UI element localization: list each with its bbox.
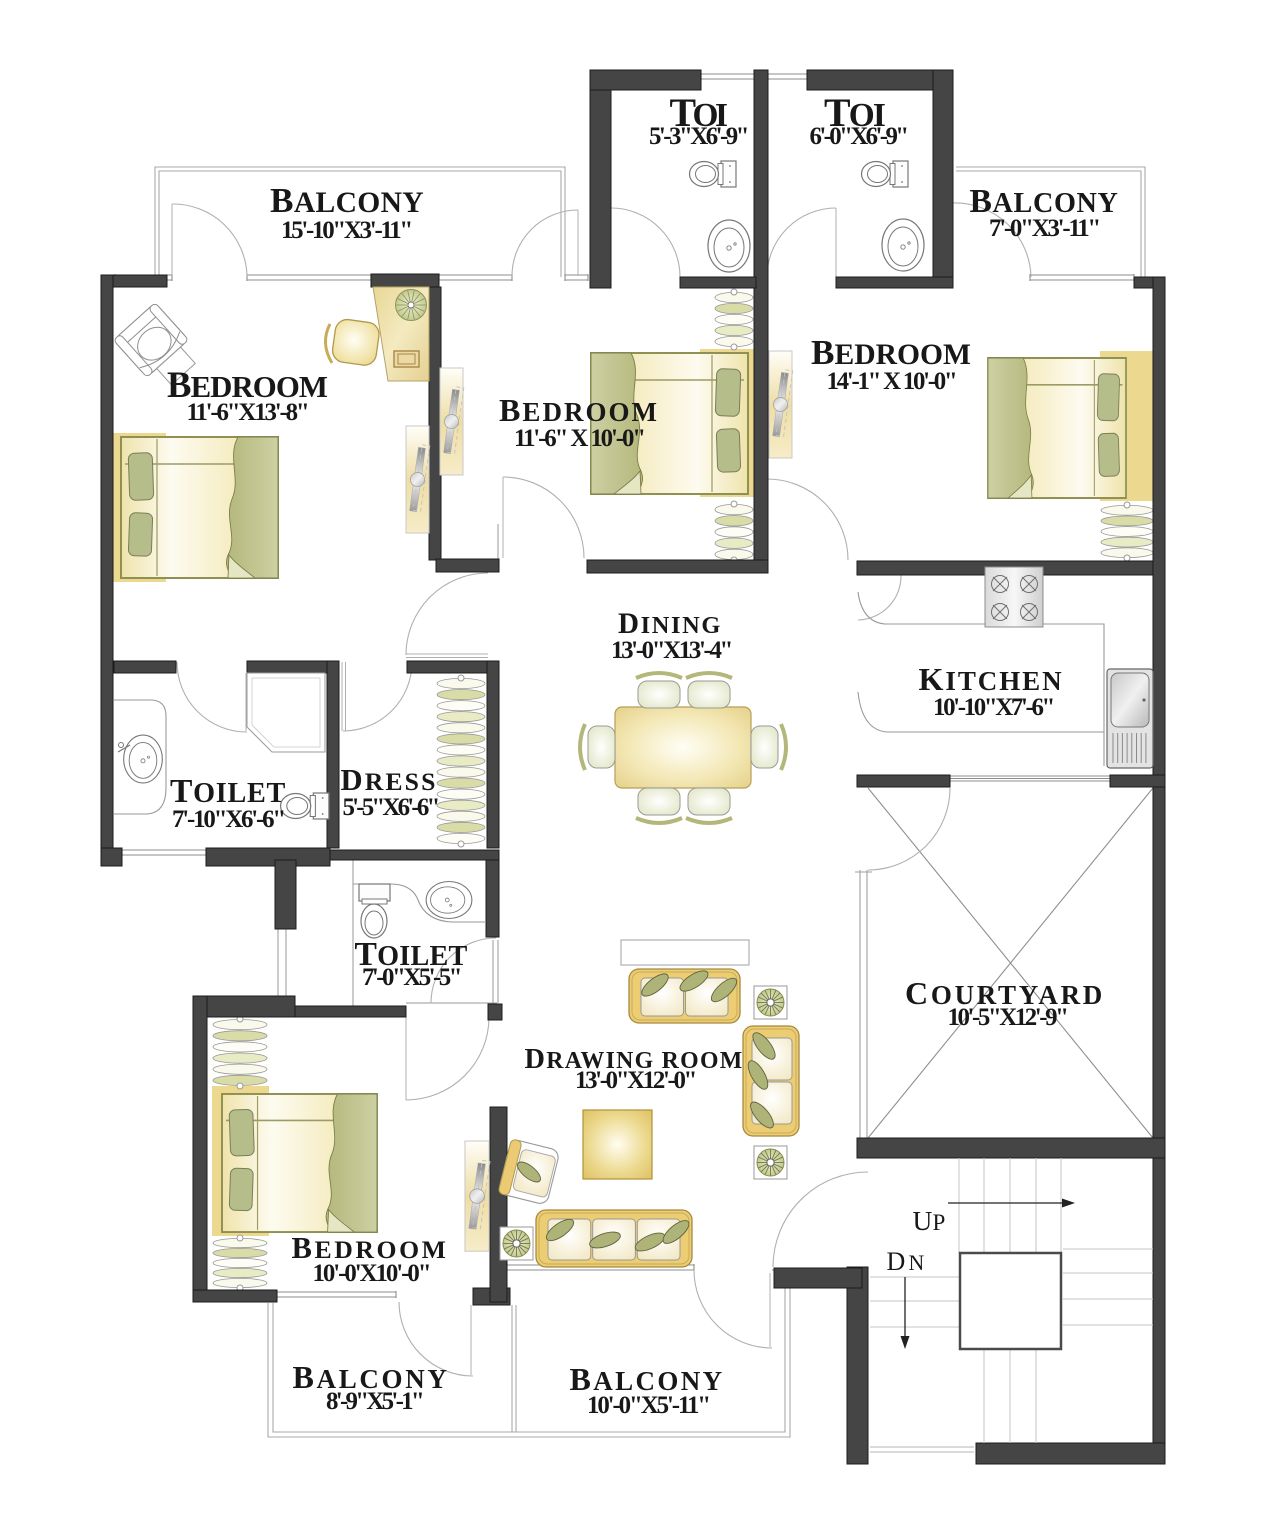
- svg-text:15'-10"X3'-11": 15'-10"X3'-11": [281, 217, 411, 244]
- svg-text:10'-5"X12'-9": 10'-5"X12'-9": [948, 1004, 1068, 1031]
- svg-text:7'-10"X6'-6": 7'-10"X6'-6": [172, 806, 284, 833]
- svg-text:10'-0"X5'-11": 10'-0"X5'-11": [587, 1392, 709, 1419]
- svg-text:BALCONY: BALCONY: [270, 181, 424, 220]
- svg-text:6'-0"X6'-9": 6'-0"X6'-9": [810, 123, 908, 150]
- svg-text:5'-5"X6'-6": 5'-5"X6'-6": [342, 794, 438, 821]
- svg-text:13'-0"X13'-4": 13'-0"X13'-4": [611, 637, 732, 664]
- svg-text:KITCHEN: KITCHEN: [919, 661, 1064, 697]
- svg-text:TOILET: TOILET: [170, 773, 286, 810]
- svg-text:10'-10"X7'-6": 10'-10"X7'-6": [933, 694, 1054, 721]
- svg-text:5'-3"X6'-9": 5'-3"X6'-9": [649, 123, 748, 150]
- svg-text:DN: DN: [887, 1247, 928, 1276]
- svg-text:14'-1" X 10'-0": 14'-1" X 10'-0": [827, 368, 956, 395]
- svg-text:10'-0'X10'-0": 10'-0'X10'-0": [312, 1260, 429, 1287]
- svg-text:BEDROOM: BEDROOM: [499, 392, 659, 428]
- svg-text:11'-6"X13'-8": 11'-6"X13'-8": [187, 399, 308, 426]
- svg-text:BEDROOM: BEDROOM: [811, 333, 971, 372]
- svg-text:DRESS: DRESS: [340, 763, 437, 797]
- svg-text:7'-0"X3'-11": 7'-0"X3'-11": [989, 215, 1099, 242]
- svg-text:8'-9"X5'-1": 8'-9"X5'-1": [326, 1388, 423, 1415]
- svg-text:UP: UP: [913, 1205, 946, 1236]
- svg-text:DINING: DINING: [618, 608, 722, 640]
- svg-text:11'-6" X 10'-0": 11'-6" X 10'-0": [514, 425, 644, 452]
- svg-text:7'-0"X5'-5": 7'-0"X5'-5": [362, 964, 461, 991]
- svg-text:13'-0"X12'-0": 13'-0"X12'-0": [575, 1067, 696, 1094]
